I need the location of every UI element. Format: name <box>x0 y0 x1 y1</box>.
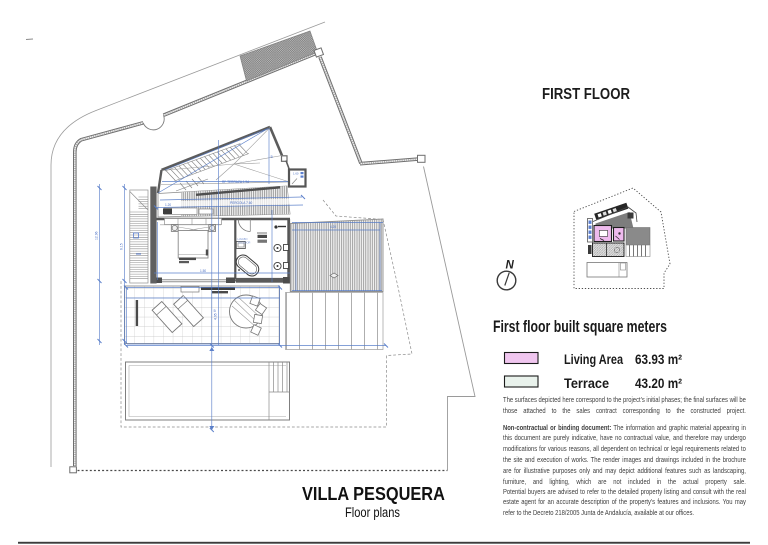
svg-text:1.20: 1.20 <box>165 203 171 207</box>
svg-text:TOCADOR: TOCADOR <box>238 240 251 244</box>
svg-text:2.9: 2.9 <box>183 294 188 298</box>
svg-text:6.15: 6.15 <box>120 243 124 250</box>
svg-text:1.60: 1.60 <box>293 172 299 176</box>
svg-text:N: N <box>506 260 515 272</box>
svg-text:4.20: 4.20 <box>330 225 336 229</box>
svg-text:1.50: 1.50 <box>200 269 206 273</box>
svg-text:12.96: 12.96 <box>95 231 99 240</box>
svg-text:LAVABO: LAVABO <box>238 237 248 241</box>
svg-text:5: 5 <box>271 154 274 159</box>
svg-text:4.95: 4.95 <box>214 313 218 320</box>
svg-text:PERGOLA 7.60: PERGOLA 7.60 <box>230 201 253 205</box>
svg-text:RF TERRAZA 1.94: RF TERRAZA 1.94 <box>222 180 249 184</box>
